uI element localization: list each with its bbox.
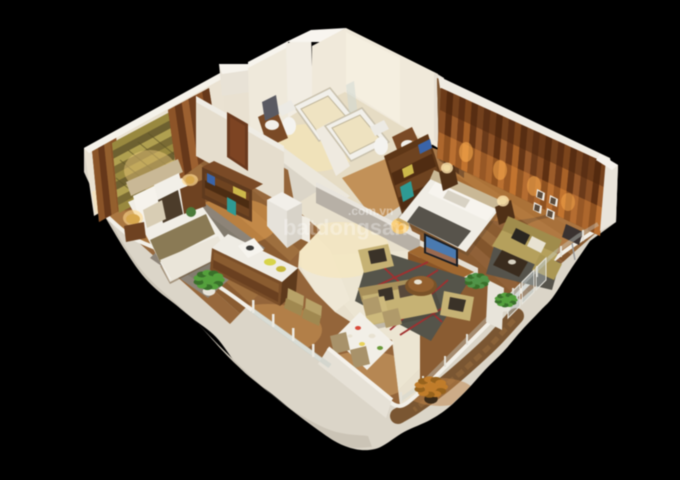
svg-text:batdongsan: batdongsan	[283, 215, 408, 240]
